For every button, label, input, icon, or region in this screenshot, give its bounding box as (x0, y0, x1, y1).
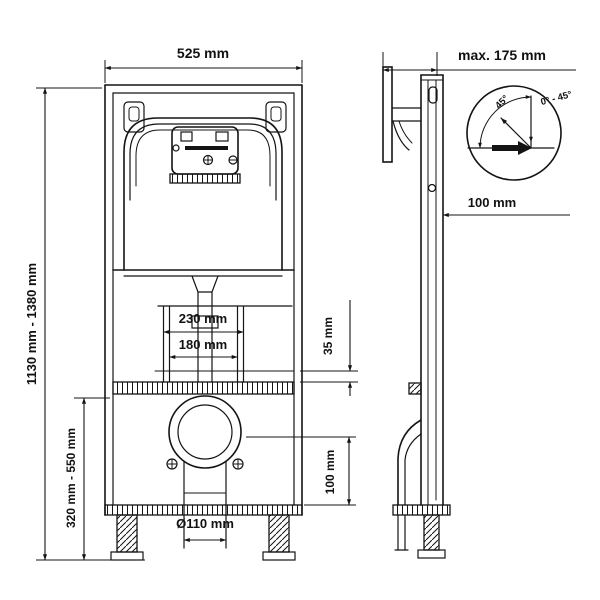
angle-detail: 45° 0° - 45° (467, 86, 573, 180)
screw-icon (204, 156, 213, 165)
dim-width: 525 mm (105, 45, 302, 83)
dim-max-depth-label: max. 175 mm (458, 47, 546, 63)
dim-wall-distance: 100 mm (443, 195, 570, 215)
anchor-slot-left (124, 102, 144, 132)
front-dimensions: 525 mm 1130 mm - 1380 mm 320 mm - 550 mm… (24, 45, 358, 560)
foot-right (263, 515, 295, 560)
dim-stud-inner-label: 180 mm (179, 337, 227, 352)
anchor-slot-right (266, 102, 286, 132)
screw-icon (229, 156, 237, 164)
outlet-opening (167, 396, 243, 469)
side-view (383, 67, 450, 558)
flush-unit-box (170, 127, 240, 183)
dim-bracket-offset-label: 35 mm (321, 317, 335, 355)
floor-rail (105, 505, 302, 515)
dim-bracket-offset: 35 mm (300, 300, 358, 396)
cistern (113, 118, 294, 276)
dim-stud-outer-label: 230 mm (179, 311, 227, 326)
dim-wall-distance-label: 100 mm (468, 195, 516, 210)
dim-outlet-diameter-label: Ø110 mm (176, 516, 234, 531)
dim-lower-range: 320 mm - 550 mm (64, 398, 110, 560)
angle-value-label: 45° (493, 93, 511, 111)
wall-bracket (383, 67, 421, 162)
technical-drawing-canvas: 525 mm 1130 mm - 1380 mm 320 mm - 550 mm… (0, 0, 600, 600)
dim-stud-inner: 180 mm (170, 337, 238, 362)
angle-range-label: 0° - 45° (540, 89, 574, 108)
drain-bend (395, 420, 421, 550)
screw-icon (233, 459, 243, 469)
dim-height-label: 1130 mm - 1380 mm (24, 263, 39, 385)
dim-width-label: 525 mm (177, 45, 229, 61)
dim-lower-range-label: 320 mm - 550 mm (64, 428, 78, 528)
side-dimensions: max. 175 mm 100 mm (383, 47, 576, 215)
foot-left (111, 515, 143, 560)
side-foot (418, 515, 445, 558)
flush-pipe-and-studs (155, 276, 294, 382)
lower-crossbar (113, 382, 294, 394)
dim-outlet-diameter: Ø110 mm (176, 516, 234, 540)
screw-icon (167, 459, 177, 469)
wc-frame-technical-drawing: 525 mm 1130 mm - 1380 mm 320 mm - 550 mm… (0, 0, 600, 600)
dim-max-depth: max. 175 mm (383, 47, 576, 80)
dim-stud-outer: 230 mm (164, 310, 244, 340)
side-floor-rail (393, 505, 450, 515)
dim-outlet-height-label: 100 mm (323, 450, 337, 495)
dim-outlet-height: 100 mm (246, 437, 356, 505)
